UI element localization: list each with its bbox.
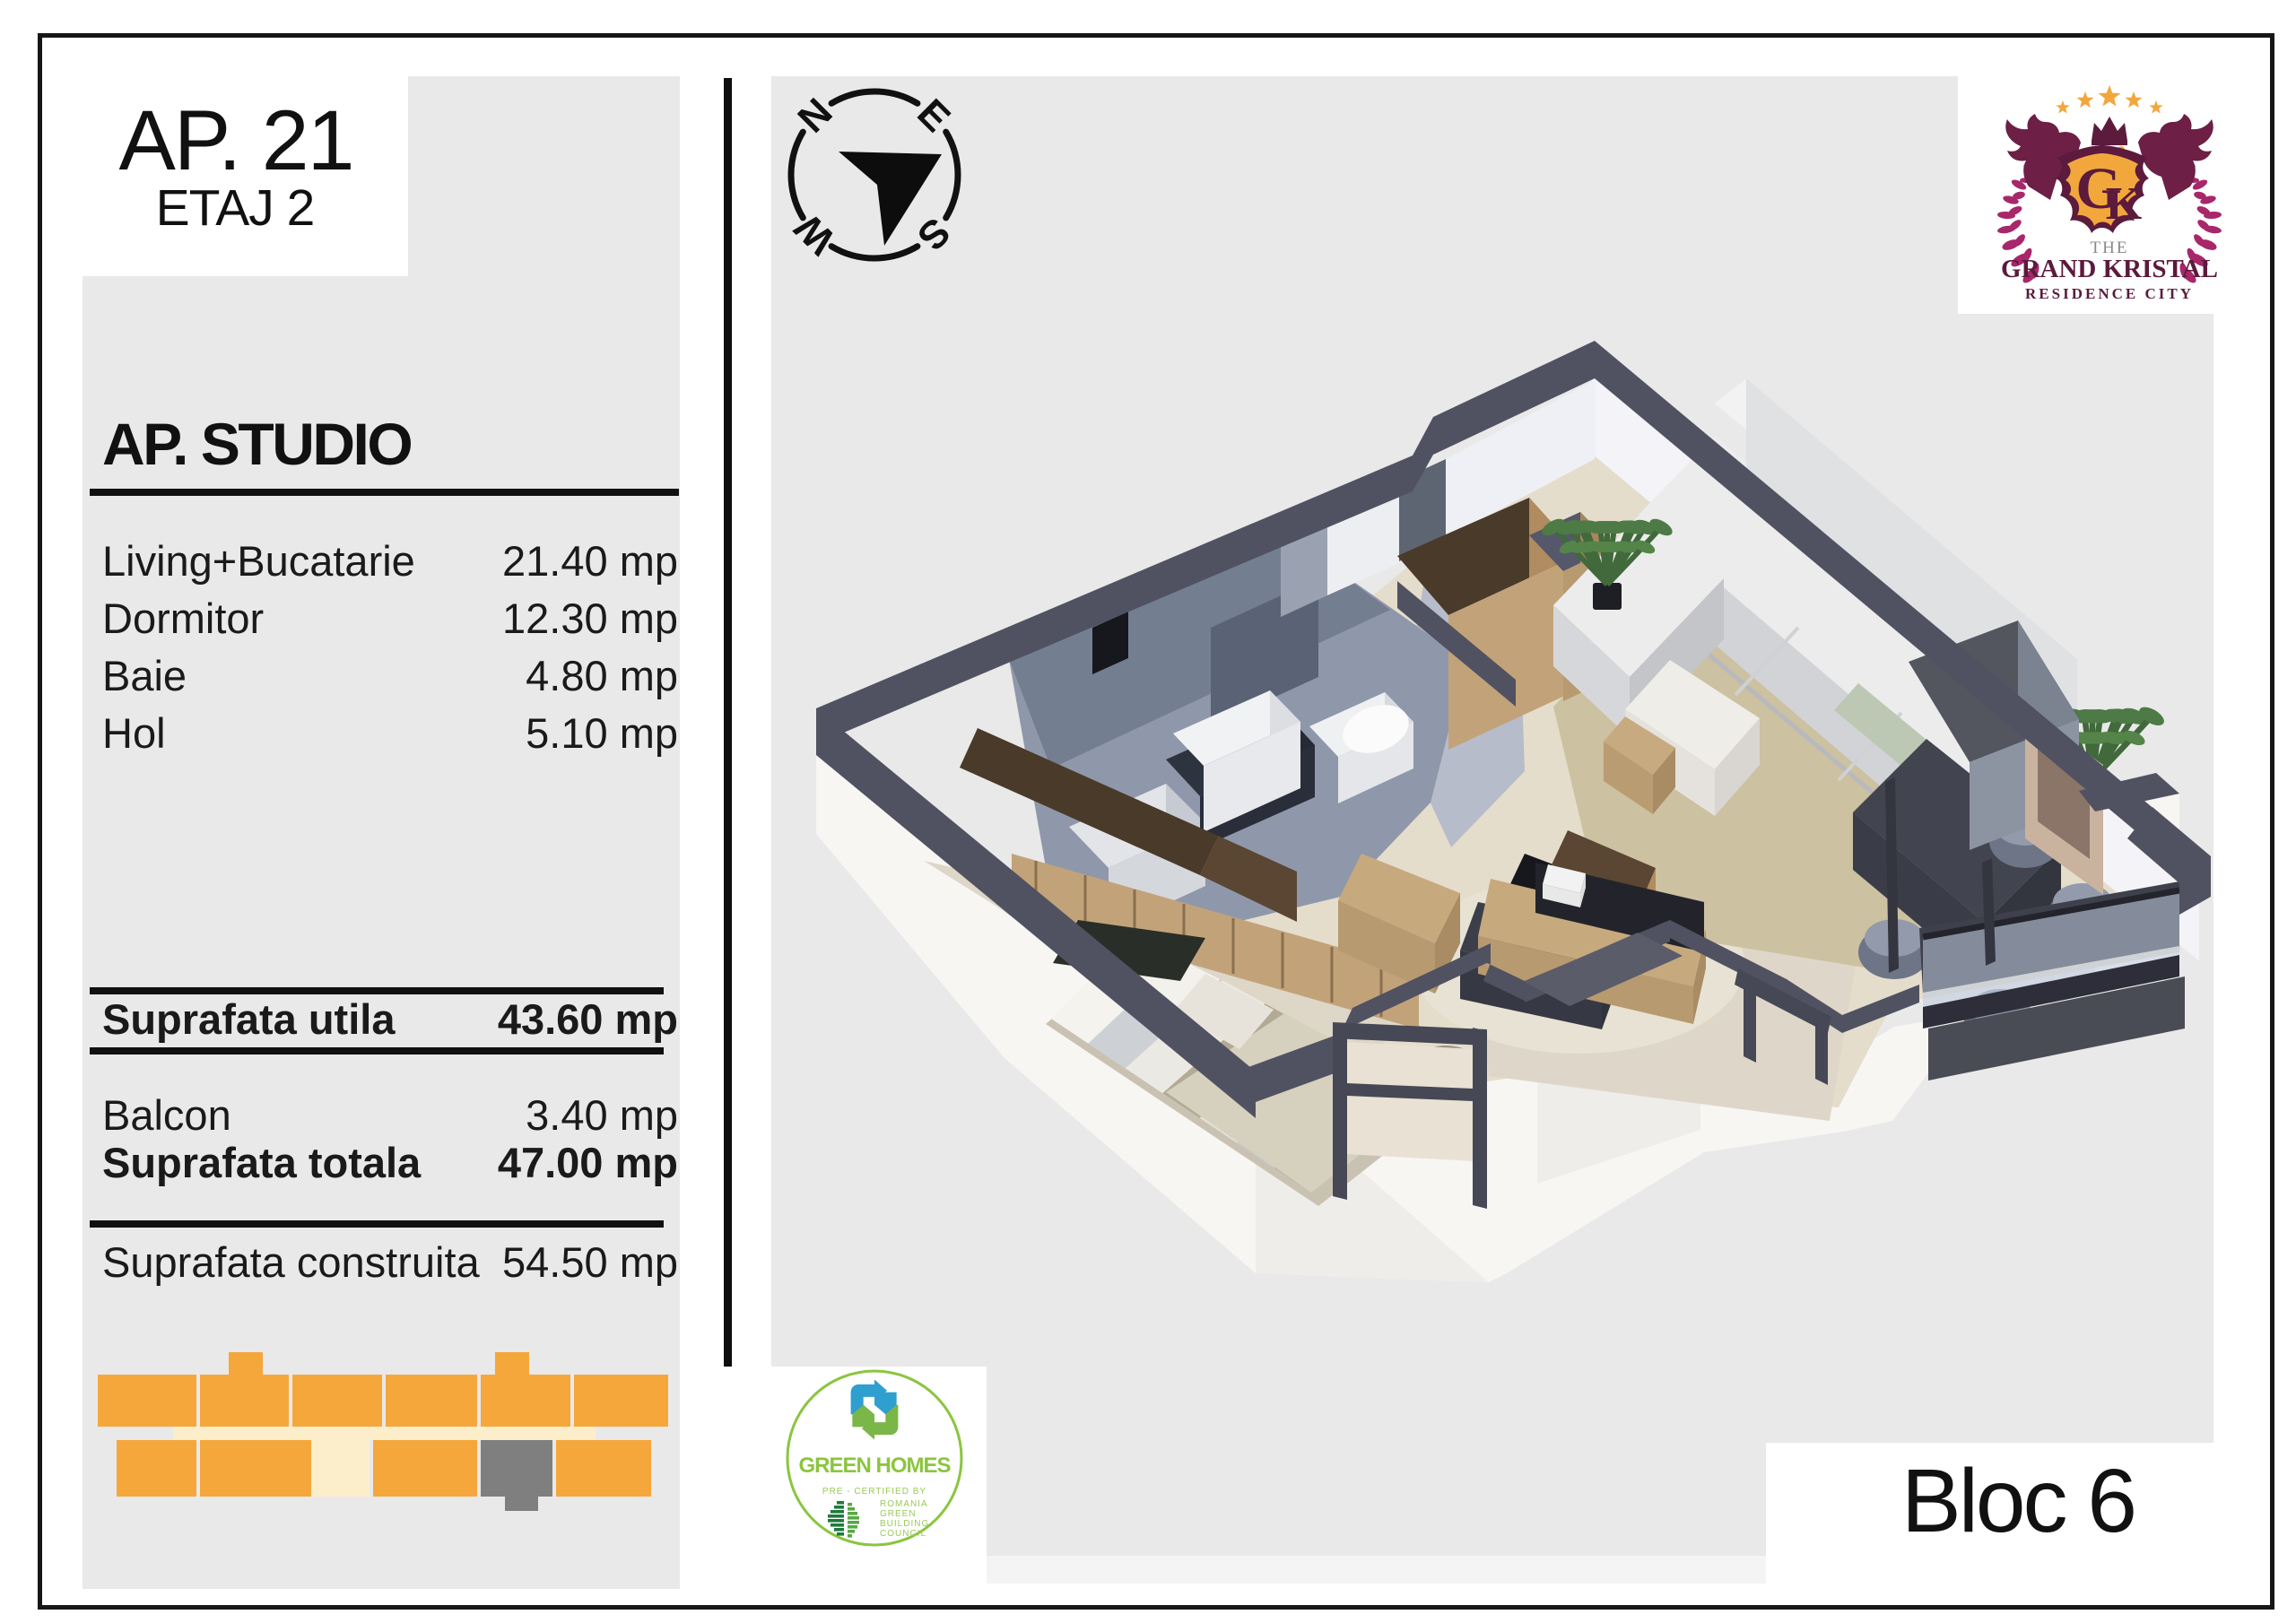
svg-text:N: N (789, 90, 840, 141)
svg-text:BUILDING: BUILDING (880, 1519, 929, 1529)
svg-text:GREEN: GREEN (880, 1509, 917, 1519)
svg-text:K: K (2106, 178, 2143, 230)
svg-text:PRE - CERTIFIED BY: PRE - CERTIFIED BY (822, 1487, 926, 1497)
svg-text:ROMANIA: ROMANIA (880, 1499, 928, 1509)
svg-text:W: W (787, 205, 844, 263)
svg-text:E: E (909, 91, 958, 140)
svg-text:GREEN HOMES: GREEN HOMES (798, 1454, 951, 1478)
svg-text:RESIDENCE CITY: RESIDENCE CITY (2025, 285, 2194, 302)
svg-text:GRAND KRISTAL: GRAND KRISTAL (2001, 255, 2218, 283)
svg-text:S: S (909, 209, 958, 258)
svg-text:COUNCIL: COUNCIL (880, 1529, 926, 1539)
